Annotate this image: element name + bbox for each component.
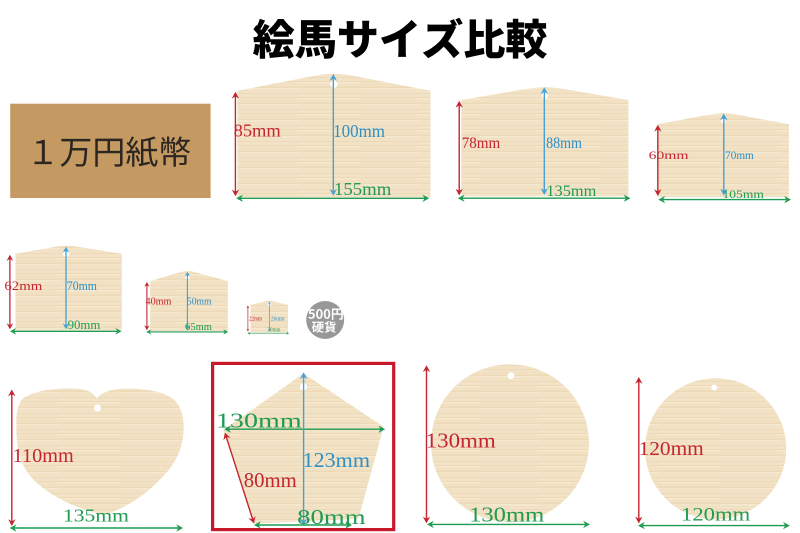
svg-text:155mm: 155mm	[334, 179, 391, 199]
svg-text:135mm: 135mm	[546, 181, 596, 200]
svg-text:123mm: 123mm	[303, 448, 371, 472]
svg-text:130mm: 130mm	[469, 503, 544, 527]
svg-text:65mm: 65mm	[185, 322, 212, 333]
svg-text:70mm: 70mm	[725, 148, 754, 162]
svg-text:50mm: 50mm	[187, 297, 212, 308]
svg-text:26mm: 26mm	[271, 316, 285, 323]
svg-text:80mm: 80mm	[297, 505, 366, 529]
svg-text:88mm: 88mm	[546, 133, 582, 152]
svg-text:105mm: 105mm	[723, 187, 765, 201]
svg-text:135mm: 135mm	[63, 506, 129, 526]
svg-text:100mm: 100mm	[333, 121, 385, 141]
svg-text:62mm: 62mm	[4, 279, 42, 293]
svg-text:22mm: 22mm	[249, 316, 262, 323]
svg-text:60mm: 60mm	[649, 148, 690, 162]
svg-text:85mm: 85mm	[234, 121, 281, 141]
svg-text:130mm: 130mm	[426, 429, 496, 453]
svg-text:90mm: 90mm	[68, 318, 101, 332]
svg-text:70mm: 70mm	[67, 279, 97, 293]
svg-text:120mm: 120mm	[639, 438, 705, 460]
svg-text:110mm: 110mm	[13, 446, 74, 467]
svg-text:120mm: 120mm	[681, 505, 750, 526]
svg-text:40mm: 40mm	[146, 297, 172, 308]
svg-text:130mm: 130mm	[216, 408, 302, 432]
svg-text:80mm: 80mm	[244, 468, 297, 492]
svg-text:78mm: 78mm	[462, 133, 501, 152]
svg-text:30mm: 30mm	[268, 326, 281, 333]
